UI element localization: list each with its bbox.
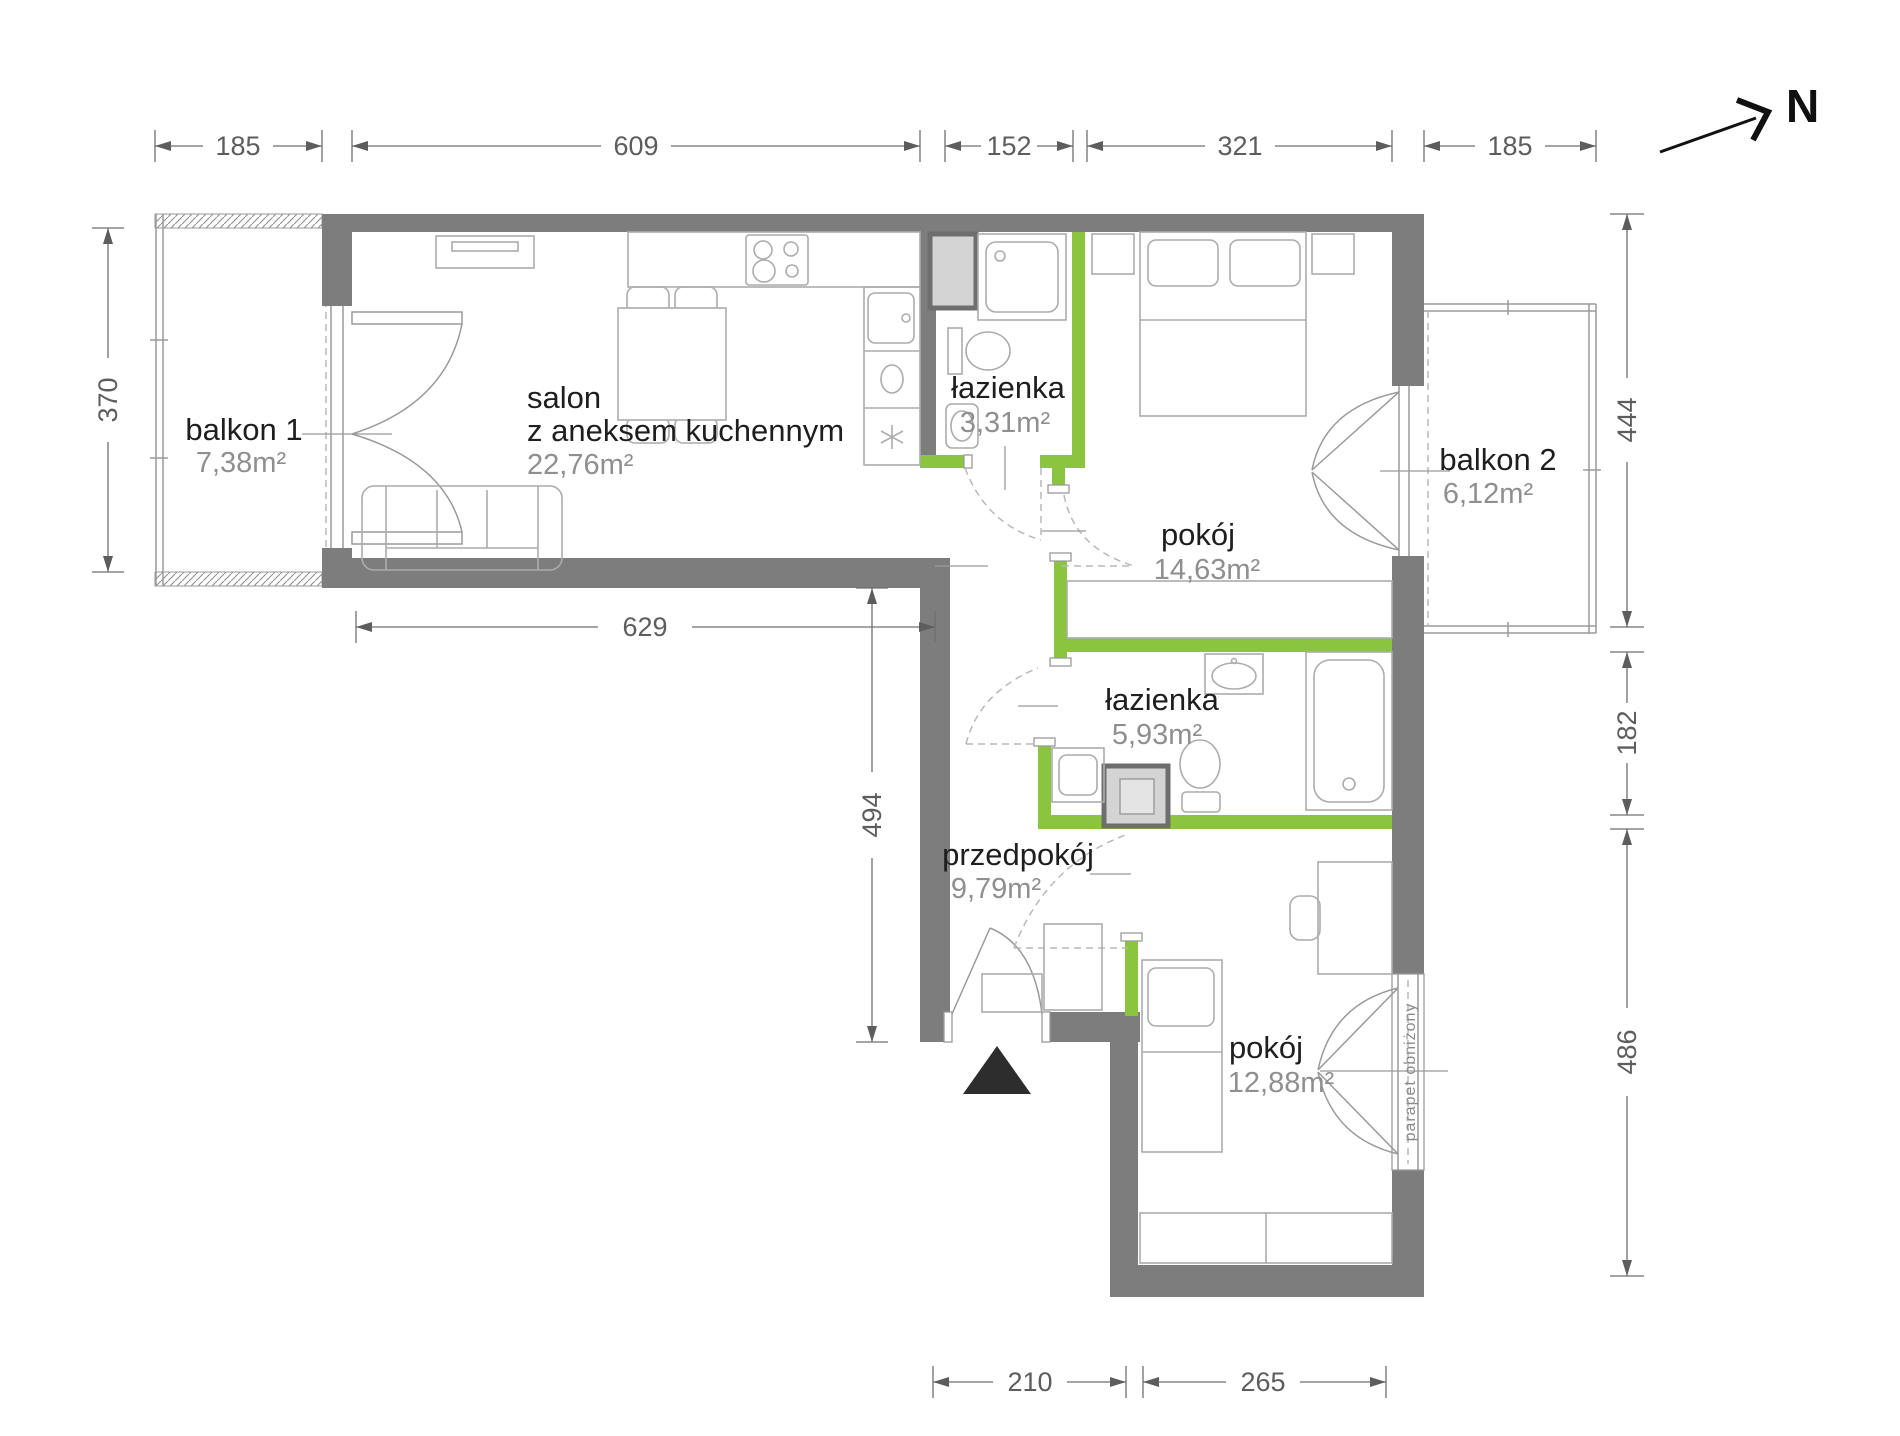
dim-right-2: 182 [1612,710,1642,755]
dim-left-balcony: 370 [93,377,123,422]
dim-top-3: 152 [986,131,1031,161]
dim-top-2: 609 [613,131,658,161]
dim-bottom-2: 265 [1240,1367,1285,1397]
room2-area: 12,88m² [1228,1067,1335,1099]
salon-name-line1: salon [527,380,601,415]
bedroom-balcony-door [1312,386,1450,556]
hall-area: 9,79m² [951,873,1042,905]
salon-name-line2: z aneksem kuchennym [527,413,844,448]
dim-top-4: 321 [1217,131,1262,161]
bedroom-area: 14,63m² [1154,554,1261,586]
salon-furniture [362,232,920,570]
dim-top-5: 185 [1487,131,1532,161]
bathroom-large-name: łazienka [1105,682,1219,717]
balcony2-name: balkon 2 [1439,442,1556,477]
north-arrow: N [1660,80,1819,152]
balcony1-name: balkon 1 [185,412,302,447]
north-arrow-icon [1660,118,1756,152]
room-labels: salon z aneksem kuchennym 22,76m² łazien… [185,370,1556,1099]
floorplan-svg: parapet obniżony [0,0,1900,1436]
entrance-marker [963,1046,1031,1094]
dim-left-inner: 629 [622,612,667,642]
dim-top-1: 185 [215,131,260,161]
window-note-label: parapet obniżony [1402,1003,1419,1142]
bathroom-small-name: łazienka [951,370,1065,405]
balcony2-area: 6,12m² [1443,478,1534,510]
hall-furniture [982,924,1102,1012]
dim-bottom-1: 210 [1007,1367,1052,1397]
balcony1-area: 7,38m² [196,447,287,479]
floorplan-page: parapet obniżony [0,0,1900,1436]
bathroom-large-area: 5,93m² [1112,719,1203,751]
entrance-door [944,928,1050,1094]
salon-area: 22,76m² [527,449,634,481]
exterior-walls [322,214,1424,1297]
hall-name: przedpokój [942,837,1094,872]
bathroom-small-area: 3,31m² [960,407,1051,439]
north-label: N [1786,80,1819,132]
dim-right-1: 444 [1612,397,1642,442]
room2-name: pokój [1229,1030,1303,1065]
dim-right-3: 486 [1612,1029,1642,1074]
balcony-1-structure [150,214,326,586]
dim-left-lower: 494 [857,792,887,837]
lowered-sill-window: parapet obniżony [1318,974,1448,1170]
bedroom-name: pokój [1161,517,1235,552]
